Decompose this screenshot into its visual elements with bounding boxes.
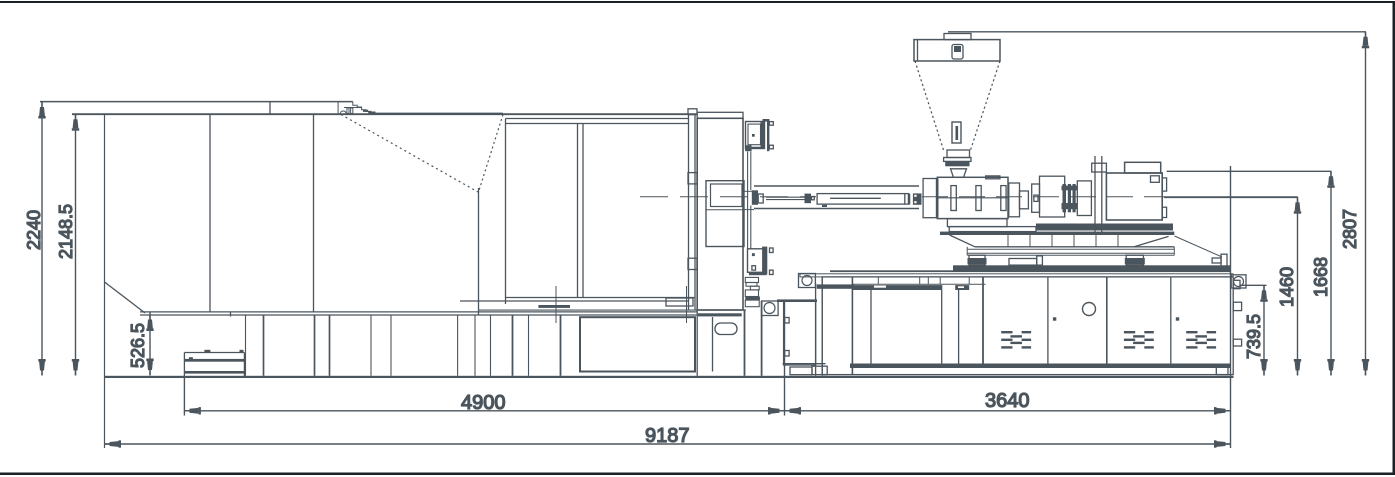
svg-text:2240: 2240 (24, 210, 44, 250)
svg-text:2148.5: 2148.5 (56, 204, 76, 259)
svg-text:739.5: 739.5 (1244, 314, 1264, 359)
svg-text:526.5: 526.5 (128, 323, 148, 368)
svg-text:3640: 3640 (985, 390, 1030, 412)
svg-text:9187: 9187 (645, 425, 690, 447)
svg-text:4900: 4900 (461, 392, 506, 414)
svg-text:1460: 1460 (1277, 267, 1297, 307)
svg-text:2807: 2807 (1340, 209, 1360, 249)
svg-text:1668: 1668 (1311, 257, 1331, 297)
